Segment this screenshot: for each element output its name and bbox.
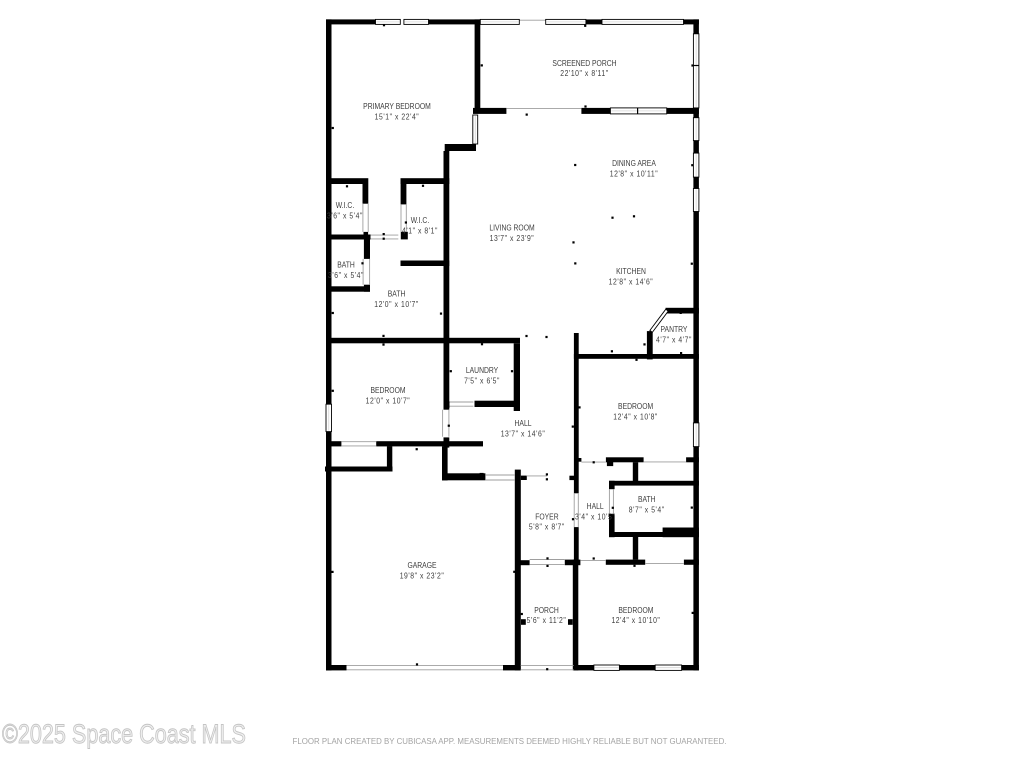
- svg-text:FLOOR PLAN CREATED BY CUBICASA: FLOOR PLAN CREATED BY CUBICASA APP. MEAS…: [293, 737, 727, 746]
- svg-text:12'4" x 10'8": 12'4" x 10'8": [613, 412, 658, 422]
- svg-text:BEDROOM: BEDROOM: [618, 605, 653, 615]
- svg-text:12'4" x 10'10": 12'4" x 10'10": [611, 615, 660, 625]
- svg-text:FOYER: FOYER: [535, 512, 559, 522]
- svg-text:BEDROOM: BEDROOM: [370, 385, 405, 395]
- svg-text:GARAGE: GARAGE: [407, 560, 436, 570]
- svg-text:5'8" x 8'7": 5'8" x 8'7": [529, 522, 565, 532]
- svg-text:5'6" x 11'2": 5'6" x 11'2": [527, 615, 567, 625]
- svg-text:BATH: BATH: [638, 494, 656, 504]
- svg-text:3'6" x 5'4": 3'6" x 5'4": [327, 211, 363, 221]
- svg-text:12'8" x 10'11": 12'8" x 10'11": [610, 169, 658, 179]
- svg-text:8'7" x 5'4": 8'7" x 5'4": [629, 505, 665, 515]
- svg-text:12'0" x 10'7": 12'0" x 10'7": [366, 396, 411, 406]
- svg-text:W.I.C.: W.I.C.: [411, 215, 429, 225]
- svg-text:4'7" x 4'7": 4'7" x 4'7": [656, 335, 692, 345]
- svg-text:BATH: BATH: [337, 260, 355, 270]
- svg-text:19'8" x 23'2": 19'8" x 23'2": [400, 571, 445, 581]
- svg-text:W.I.C.: W.I.C.: [336, 200, 354, 210]
- svg-text:HALL: HALL: [587, 502, 604, 512]
- svg-text:PANTRY: PANTRY: [661, 324, 688, 334]
- svg-text:BEDROOM: BEDROOM: [618, 401, 653, 411]
- svg-text:DINING AREA: DINING AREA: [612, 158, 657, 168]
- svg-text:3'4" x 10'5": 3'4" x 10'5": [575, 512, 615, 522]
- svg-text:©2025 Space Coast MLS: ©2025 Space Coast MLS: [2, 720, 246, 750]
- svg-text:15'1" x 22'4": 15'1" x 22'4": [375, 112, 420, 122]
- svg-text:PORCH: PORCH: [534, 605, 559, 615]
- svg-text:13'7" x 14'6": 13'7" x 14'6": [501, 429, 546, 439]
- svg-text:13'7" x 23'9": 13'7" x 23'9": [490, 233, 535, 243]
- svg-text:12'0" x 10'7": 12'0" x 10'7": [374, 299, 419, 309]
- svg-text:LAUNDRY: LAUNDRY: [466, 365, 498, 375]
- svg-text:12'8" x 14'6": 12'8" x 14'6": [609, 277, 654, 287]
- svg-text:BATH: BATH: [388, 289, 406, 299]
- svg-text:PRIMARY BEDROOM: PRIMARY BEDROOM: [363, 101, 431, 111]
- svg-text:4'1" x 8'1": 4'1" x 8'1": [402, 226, 438, 236]
- svg-text:HALL: HALL: [515, 418, 532, 428]
- svg-text:LIVING ROOM: LIVING ROOM: [489, 223, 534, 233]
- svg-text:SCREENED PORCH: SCREENED PORCH: [552, 58, 616, 68]
- svg-text:7'5" x 6'5": 7'5" x 6'5": [464, 376, 500, 386]
- svg-text:KITCHEN: KITCHEN: [616, 266, 646, 276]
- svg-text:22'10" x 8'11": 22'10" x 8'11": [560, 68, 608, 78]
- svg-text:3'6" x 5'4": 3'6" x 5'4": [328, 270, 364, 280]
